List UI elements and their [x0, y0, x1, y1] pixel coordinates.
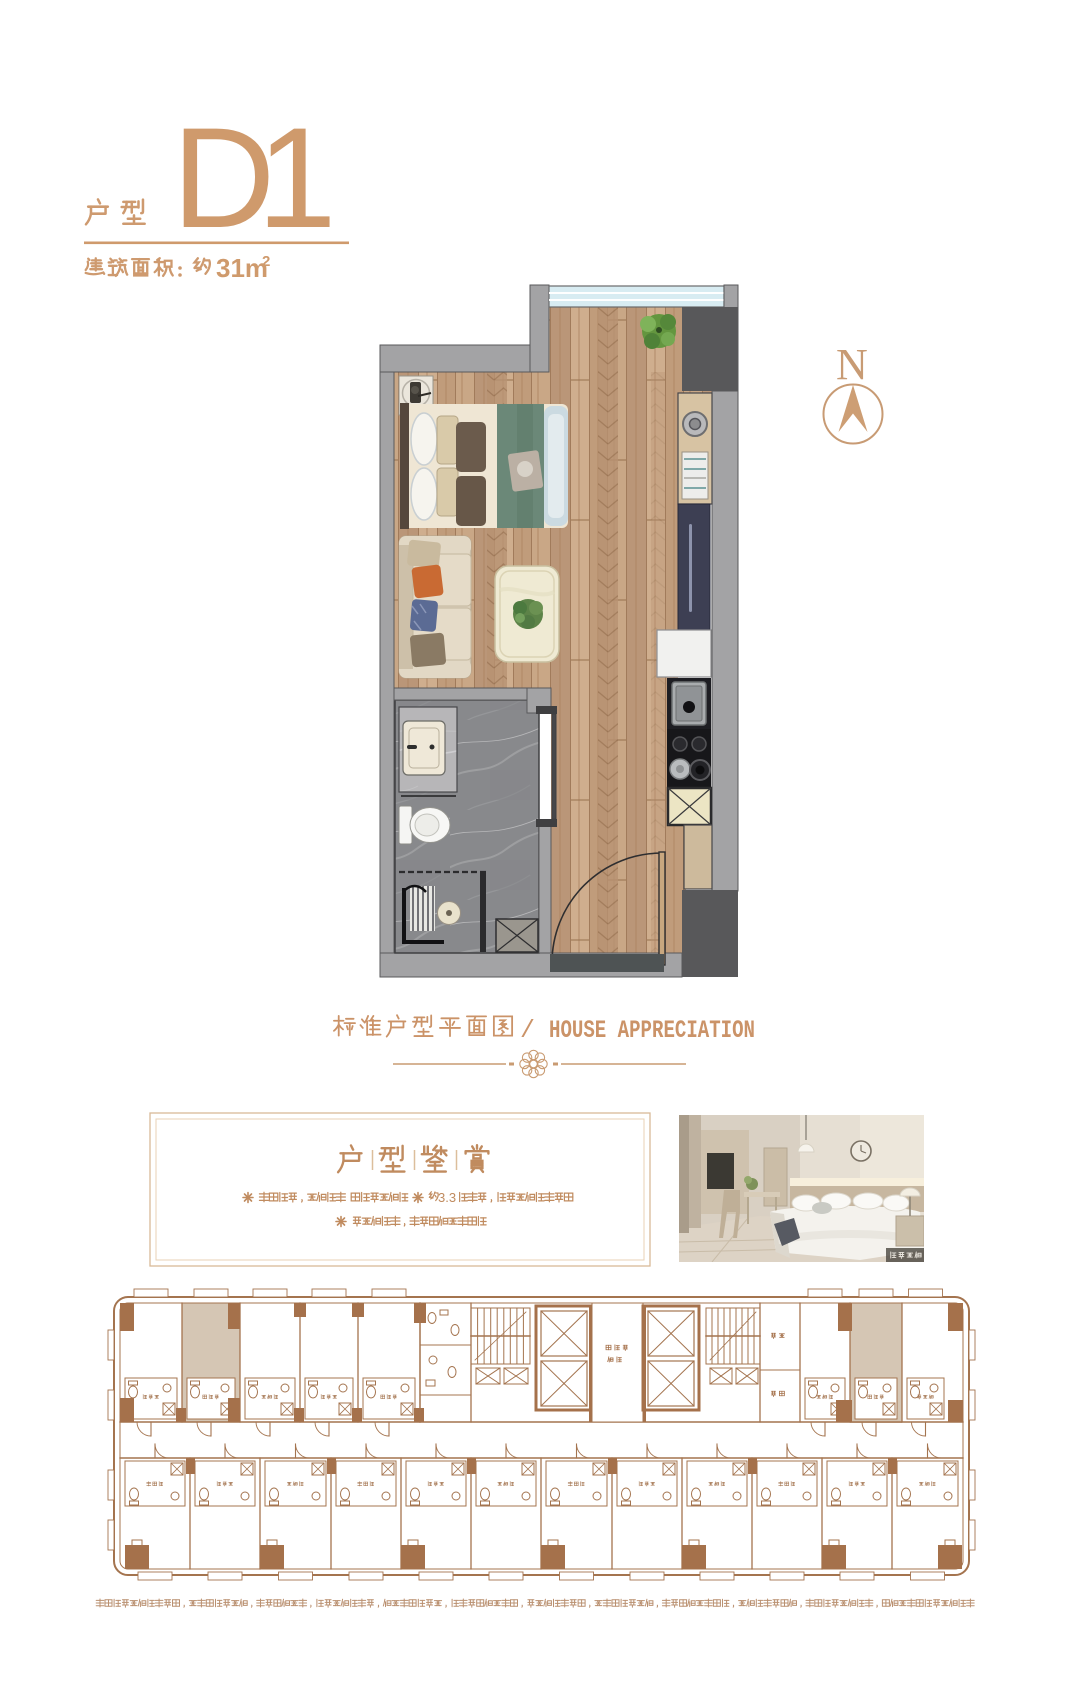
- svg-text:1: 1: [257, 99, 337, 258]
- svg-text:2: 2: [262, 253, 270, 270]
- svg-text:N: N: [836, 340, 868, 389]
- svg-text:/: /: [520, 1016, 535, 1045]
- svg-text:31m: 31m: [216, 253, 268, 283]
- svg-text:3.3: 3.3: [438, 1190, 456, 1205]
- svg-text:HOUSE APPRECIATION: HOUSE APPRECIATION: [549, 1016, 755, 1045]
